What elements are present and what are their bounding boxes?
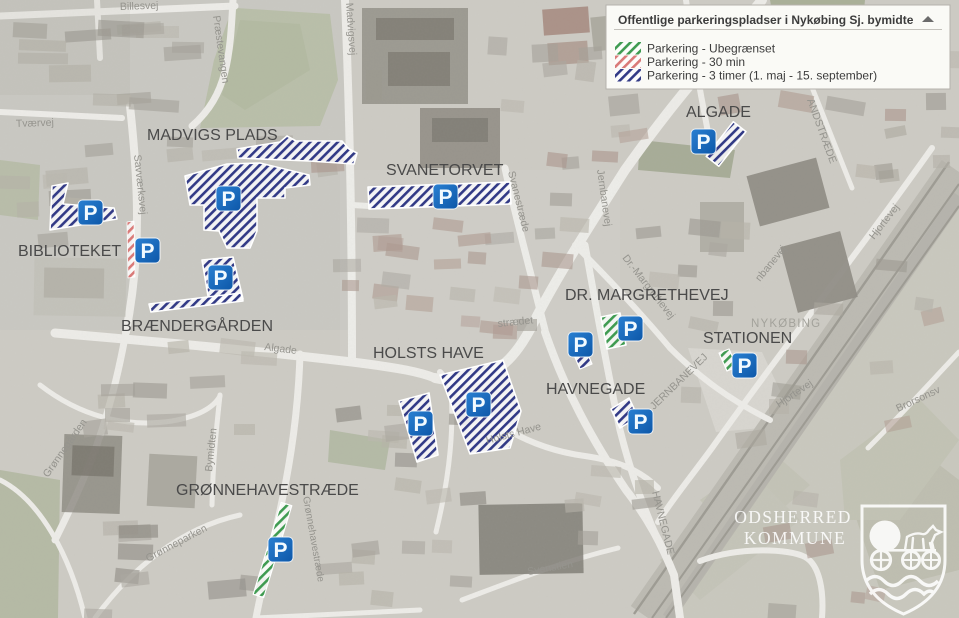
svg-text:MADVIGS PLADS: MADVIGS PLADS (147, 127, 278, 144)
svg-text:BIBLIOTEKET: BIBLIOTEKET (18, 243, 121, 260)
svg-text:Billesvej: Billesvej (120, 0, 159, 13)
svg-text:HOLSTS HAVE: HOLSTS HAVE (373, 345, 484, 362)
svg-text:BRÆNDERGÅRDEN: BRÆNDERGÅRDEN (121, 316, 273, 335)
svg-text:Tværvej: Tværvej (16, 117, 54, 130)
svg-text:ALGADE: ALGADE (686, 104, 751, 121)
svg-text:Parkering - 3 timer (1. maj -: Parkering - 3 timer (1. maj - 15. septem… (647, 69, 877, 83)
svg-text:NYKØBING: NYKØBING (751, 318, 821, 330)
svg-text:Parkering - 30 min: Parkering - 30 min (647, 55, 745, 69)
svg-text:KOMMUNE: KOMMUNE (744, 528, 846, 548)
svg-text:SVANETORVET: SVANETORVET (386, 162, 504, 179)
svg-text:ODSHERRED: ODSHERRED (734, 507, 852, 527)
svg-text:DR. MARGRETHEVEJ: DR. MARGRETHEVEJ (565, 287, 729, 304)
svg-text:Parkering - Ubegrænset: Parkering - Ubegrænset (647, 42, 776, 56)
svg-text:HAVNEGADE: HAVNEGADE (546, 381, 645, 398)
svg-text:GRØNNEHAVESTRÆDE: GRØNNEHAVESTRÆDE (176, 482, 359, 499)
svg-text:Offentlige parkeringspladser i: Offentlige parkeringspladser i Nykøbing … (618, 13, 914, 27)
svg-text:STATIONEN: STATIONEN (703, 330, 792, 347)
